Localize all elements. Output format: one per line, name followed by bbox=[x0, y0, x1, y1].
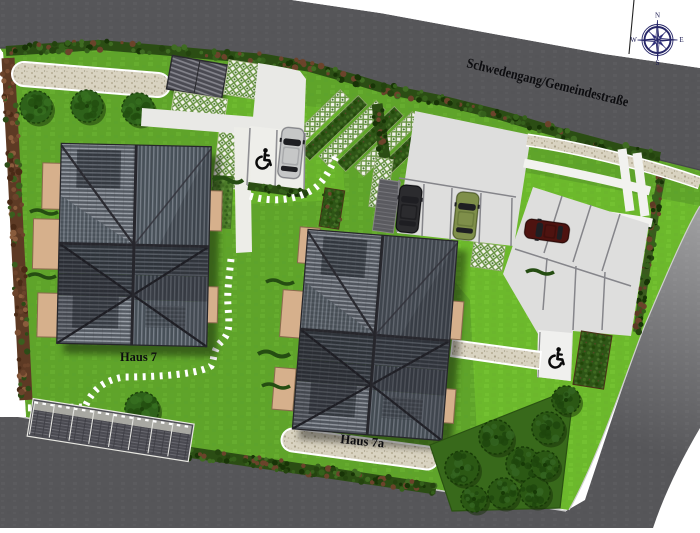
svg-text:E: E bbox=[679, 36, 683, 44]
svg-text:S: S bbox=[656, 59, 660, 67]
svg-text:W: W bbox=[630, 36, 637, 44]
svg-text:Haus 7: Haus 7 bbox=[120, 349, 157, 364]
svg-text:N: N bbox=[655, 12, 660, 20]
